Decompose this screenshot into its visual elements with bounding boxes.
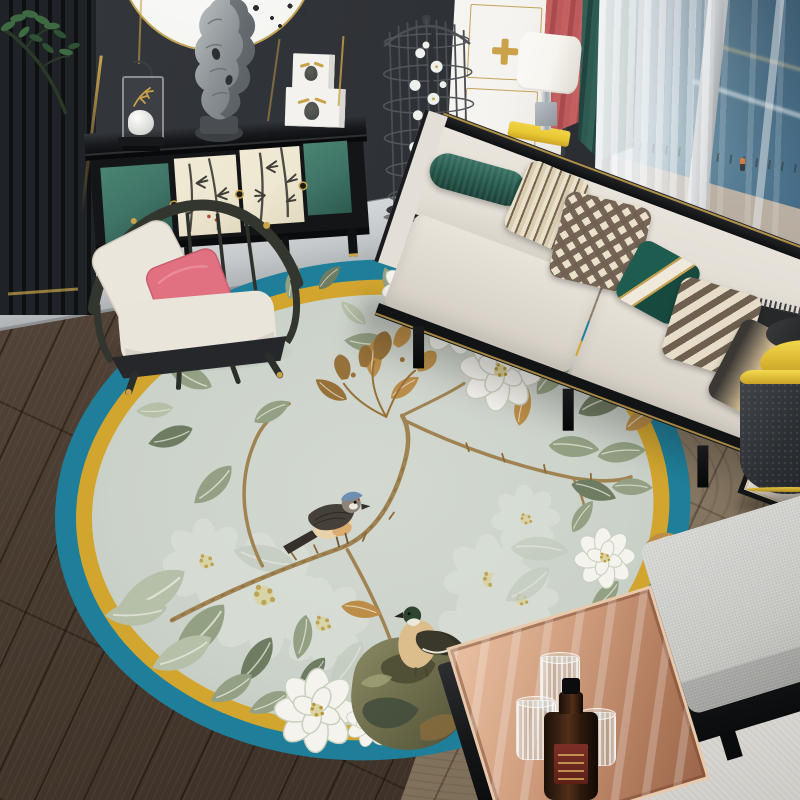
case-base-2 [122,146,160,151]
lamp-shade [515,31,583,95]
stool-brass-band [740,370,800,384]
scholar-stone-sculpture [172,0,268,144]
bench-leg-1 [719,729,742,760]
drum-stool [740,370,800,494]
glass-display-case [116,74,166,156]
sofa-leg-3 [697,445,708,487]
cabinet-door-teal-right [303,141,352,216]
bonsai-plant [0,4,92,116]
armchair [68,182,320,398]
sofa-leg-1 [413,326,424,368]
lamp-marble-base [535,102,557,126]
gold-bamboo-sprig [126,82,156,112]
door-handle-icon-v [500,39,508,65]
sofa-leg-2 [563,389,574,431]
gift-boxes [285,49,346,129]
cabinet-leg-right [347,227,358,257]
dragonfly-icon-2 [314,61,324,67]
box-medallion-icon [304,66,318,81]
bottle-label [554,744,588,784]
gift-box-bottom [285,87,346,128]
living-room-scene [0,0,800,800]
case-base [118,137,164,146]
bottle-cap [562,678,580,694]
white-stone [128,110,154,135]
gift-box-top [292,53,335,89]
amber-bottle [544,712,598,800]
dragonfly-icon-4 [315,97,327,103]
box-medallion-icon-2 [304,102,320,121]
